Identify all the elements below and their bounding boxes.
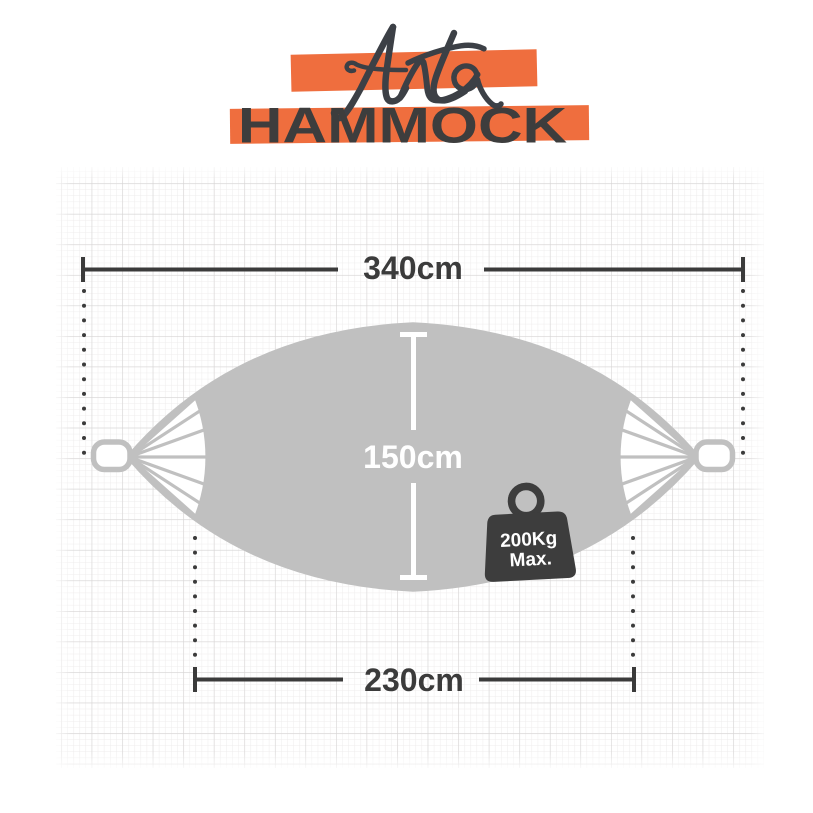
svg-text:150cm: 150cm	[363, 439, 463, 475]
svg-text:230cm: 230cm	[364, 662, 464, 698]
svg-text:HAMMOCK: HAMMOCK	[238, 97, 568, 153]
svg-text:Max.: Max.	[509, 548, 552, 571]
svg-text:340cm: 340cm	[363, 250, 463, 286]
